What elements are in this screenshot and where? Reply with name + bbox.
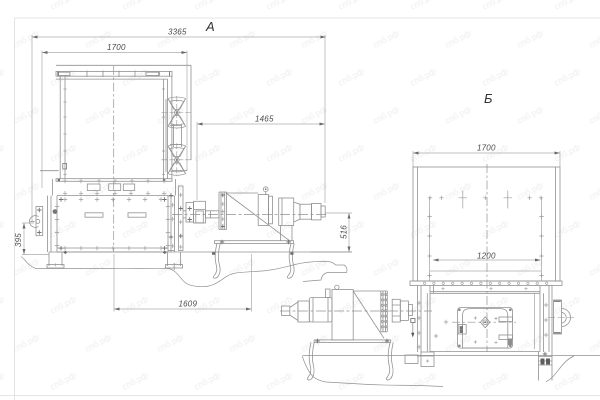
svg-text:спб.рф: спб.рф (443, 256, 472, 278)
svg-text:спб.рф: спб.рф (552, 218, 581, 240)
svg-text:спб.рф: спб.рф (120, 218, 149, 240)
svg-text:спб.рф: спб.рф (552, 370, 581, 392)
svg-text:спб.рф: спб.рф (120, 370, 149, 392)
svg-text:спб.рф: спб.рф (336, 142, 365, 164)
svg-text:спб.рф: спб.рф (299, 180, 328, 202)
svg-text:спб.рф: спб.рф (299, 104, 328, 126)
svg-text:спб.рф: спб.рф (336, 66, 365, 88)
svg-text:спб.рф: спб.рф (480, 66, 509, 88)
svg-text:спб.рф: спб.рф (0, 142, 5, 164)
svg-text:спб.рф: спб.рф (120, 142, 149, 164)
svg-text:395: 395 (14, 233, 23, 247)
svg-text:спб.рф: спб.рф (48, 370, 77, 392)
svg-text:спб.рф: спб.рф (264, 66, 293, 88)
svg-text:1609: 1609 (179, 300, 198, 309)
svg-text:спб.рф: спб.рф (264, 142, 293, 164)
svg-text:спб.рф: спб.рф (443, 28, 472, 50)
svg-text:спб.рф: спб.рф (83, 256, 112, 278)
svg-text:спб.рф: спб.рф (587, 332, 600, 354)
svg-text:А: А (205, 19, 215, 34)
svg-text:спб.рф: спб.рф (11, 180, 40, 202)
svg-text:спб.рф: спб.рф (0, 66, 5, 88)
svg-text:спб.рф: спб.рф (336, 370, 365, 392)
svg-text:спб.рф: спб.рф (299, 28, 328, 50)
svg-text:516: 516 (340, 225, 349, 239)
svg-text:спб.рф: спб.рф (0, 0, 5, 12)
svg-text:спб.рф: спб.рф (587, 104, 600, 126)
svg-text:спб.рф: спб.рф (11, 28, 40, 50)
svg-text:спб.рф: спб.рф (192, 66, 221, 88)
svg-text:спб.рф: спб.рф (227, 104, 256, 126)
svg-text:спб.рф: спб.рф (0, 294, 5, 316)
svg-text:спб.рф: спб.рф (48, 142, 77, 164)
svg-text:спб.рф: спб.рф (371, 332, 400, 354)
svg-text:спб.рф: спб.рф (371, 180, 400, 202)
svg-text:3365: 3365 (168, 28, 187, 37)
svg-text:1700: 1700 (107, 43, 126, 52)
svg-text:спб.рф: спб.рф (155, 332, 184, 354)
svg-text:спб.рф: спб.рф (587, 180, 600, 202)
svg-text:спб.рф: спб.рф (443, 180, 472, 202)
svg-text:спб.рф: спб.рф (515, 28, 544, 50)
svg-text:спб.рф: спб.рф (227, 180, 256, 202)
svg-text:спб.рф: спб.рф (587, 28, 600, 50)
svg-text:спб.рф: спб.рф (120, 0, 149, 12)
svg-text:спб.рф: спб.рф (480, 0, 509, 12)
svg-text:спб.рф: спб.рф (515, 256, 544, 278)
svg-text:спб.рф: спб.рф (120, 294, 149, 316)
svg-text:спб.рф: спб.рф (515, 104, 544, 126)
svg-text:1700: 1700 (477, 144, 496, 153)
svg-text:спб.рф: спб.рф (336, 294, 365, 316)
svg-text:спб.рф: спб.рф (11, 256, 40, 278)
svg-text:спб.рф: спб.рф (336, 0, 365, 12)
svg-text:спб.рф: спб.рф (192, 142, 221, 164)
svg-text:спб.рф: спб.рф (227, 256, 256, 278)
svg-text:спб.рф: спб.рф (83, 104, 112, 126)
svg-text:спб.рф: спб.рф (48, 0, 77, 12)
svg-text:спб.рф: спб.рф (155, 180, 184, 202)
svg-text:спб.рф: спб.рф (480, 370, 509, 392)
svg-text:спб.рф: спб.рф (587, 256, 600, 278)
svg-text:спб.рф: спб.рф (552, 66, 581, 88)
svg-text:спб.рф: спб.рф (371, 256, 400, 278)
svg-text:спб.рф: спб.рф (443, 104, 472, 126)
svg-text:спб.рф: спб.рф (227, 28, 256, 50)
svg-text:спб.рф: спб.рф (48, 218, 77, 240)
svg-text:спб.рф: спб.рф (371, 28, 400, 50)
svg-text:спб.рф: спб.рф (480, 294, 509, 316)
svg-text:спб.рф: спб.рф (227, 332, 256, 354)
svg-text:спб.рф: спб.рф (371, 104, 400, 126)
svg-text:спб.рф: спб.рф (192, 370, 221, 392)
svg-text:спб.рф: спб.рф (11, 104, 40, 126)
svg-text:спб.рф: спб.рф (264, 294, 293, 316)
svg-text:спб.рф: спб.рф (552, 294, 581, 316)
svg-text:1465: 1465 (255, 115, 274, 124)
svg-text:спб.рф: спб.рф (0, 370, 5, 392)
svg-text:спб.рф: спб.рф (408, 0, 437, 12)
svg-text:1200: 1200 (477, 252, 496, 261)
svg-text:спб.рф: спб.рф (83, 332, 112, 354)
svg-text:спб.рф: спб.рф (192, 218, 221, 240)
svg-text:спб.рф: спб.рф (408, 370, 437, 392)
svg-text:спб.рф: спб.рф (48, 66, 77, 88)
svg-text:спб.рф: спб.рф (552, 0, 581, 12)
svg-text:спб.рф: спб.рф (48, 294, 77, 316)
svg-text:Б: Б (484, 91, 493, 106)
svg-text:спб.рф: спб.рф (264, 370, 293, 392)
svg-text:спб.рф: спб.рф (0, 218, 5, 240)
svg-text:спб.рф: спб.рф (408, 66, 437, 88)
svg-text:спб.рф: спб.рф (11, 332, 40, 354)
svg-text:спб.рф: спб.рф (192, 0, 221, 12)
svg-text:спб.рф: спб.рф (480, 218, 509, 240)
svg-text:спб.рф: спб.рф (264, 0, 293, 12)
